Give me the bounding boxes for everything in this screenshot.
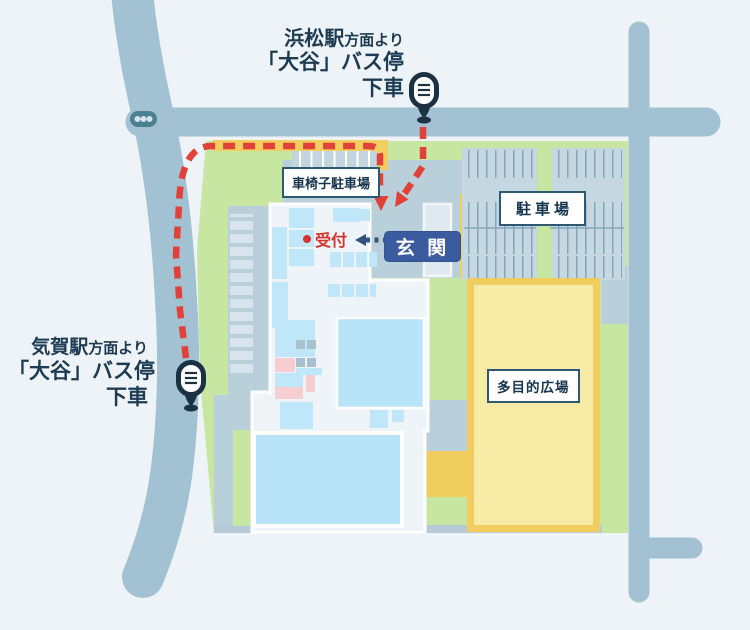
entrance-badge: 玄 関 <box>384 231 461 262</box>
traffic-light-icon <box>130 111 157 127</box>
station-name: 浜松駅 <box>284 26 344 50</box>
wheelchair-parking-label: 車椅子駐車場 <box>282 167 380 198</box>
plaza-label: 多目的広場 <box>487 369 580 403</box>
route-label-hamamatsu: 浜松駅方面より 「大谷」バス停 下車 <box>234 26 404 102</box>
access-map: 浜松駅方面より 「大谷」バス停 下車 気賀駅方面より 「大谷」バス停 下車 車椅… <box>0 0 750 630</box>
station-name: 気賀駅 <box>31 336 88 358</box>
side-stall-bars <box>230 214 253 377</box>
left-road <box>131 0 178 577</box>
reception-dot-icon <box>303 235 311 243</box>
plaza-area <box>471 282 597 529</box>
main-hall <box>254 433 402 526</box>
route-label-kiga: 気賀駅方面より 「大谷」バス停 下車 <box>8 336 148 410</box>
reception-label: 受付 <box>303 227 347 251</box>
parking-label: 駐車場 <box>499 191 586 226</box>
